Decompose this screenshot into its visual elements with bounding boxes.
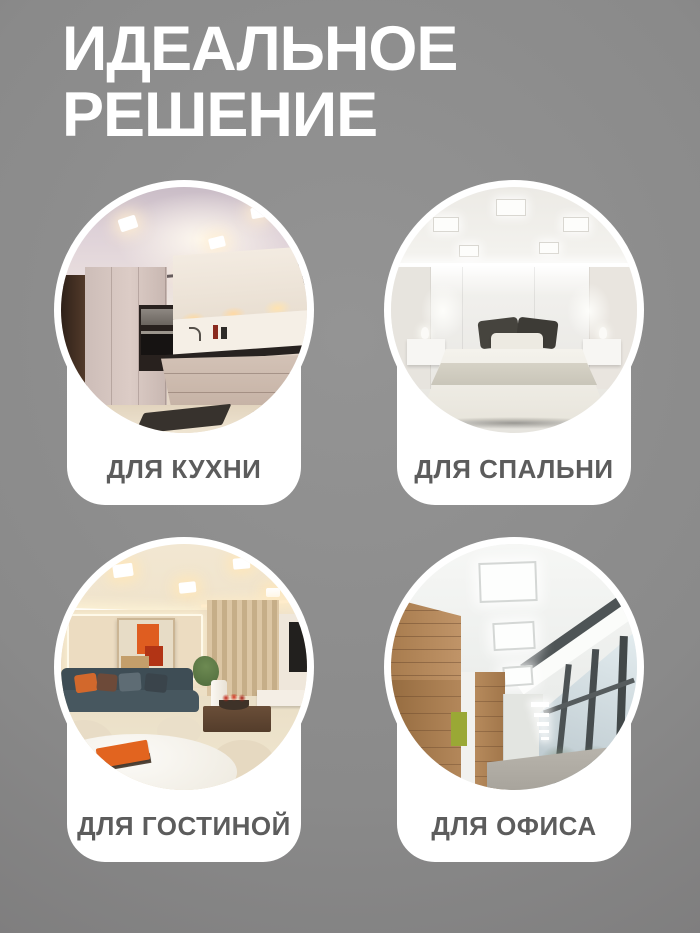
bedroom-lamp xyxy=(421,327,429,339)
bedroom-ceiling-panel xyxy=(433,217,459,232)
living-ceiling-light xyxy=(178,581,196,594)
bedroom-lamp xyxy=(599,327,607,339)
card-office: ДЛЯ ОФИСА xyxy=(384,537,644,862)
office-photo xyxy=(391,544,637,790)
living-room-photo xyxy=(61,544,307,790)
card-office-photo-ring xyxy=(384,537,644,797)
card-living-room-photo-ring xyxy=(54,537,314,797)
living-pillow-gray xyxy=(118,672,141,691)
office-corridor-light xyxy=(539,730,549,733)
office-green-accent xyxy=(451,712,467,746)
page-title: ИДЕАЛЬНОЕ РЕШЕНИЕ xyxy=(62,16,457,148)
living-fruit xyxy=(221,694,247,702)
bedroom-nightstand xyxy=(407,339,445,365)
kitchen-doorway xyxy=(61,275,87,407)
kitchen-oven-window xyxy=(141,331,173,355)
living-ceiling-light xyxy=(233,557,251,569)
page-title-line1: ИДЕАЛЬНОЕ xyxy=(62,16,457,82)
card-living-room-label: ДЛЯ ГОСТИНОЙ xyxy=(64,811,304,842)
kitchen-bottle xyxy=(221,327,227,339)
office-led-panel xyxy=(478,561,537,603)
kitchen-photo xyxy=(61,187,307,433)
office-led-panel xyxy=(502,665,533,687)
bedroom-ceiling-panel xyxy=(459,245,479,257)
card-bedroom-photo-ring xyxy=(384,180,644,440)
kitchen-bottle xyxy=(213,325,218,339)
office-led-panel xyxy=(492,621,535,651)
living-tv xyxy=(289,622,307,672)
bedroom-bed xyxy=(419,349,609,421)
promo-banner: ИДЕАЛЬНОЕ РЕШЕНИЕ xyxy=(0,0,700,933)
card-kitchen: ДЛЯ КУХНИ xyxy=(54,180,314,505)
bedroom-blanket xyxy=(431,363,597,385)
office-corridor-light xyxy=(537,722,549,726)
bedroom-ceiling-panel xyxy=(563,217,589,232)
bedroom-photo xyxy=(391,187,637,433)
card-kitchen-label: ДЛЯ КУХНИ xyxy=(64,454,304,485)
bedroom-nightstand xyxy=(583,339,621,365)
office-corridor-light xyxy=(534,713,549,717)
living-pillow-orange xyxy=(74,673,98,694)
card-office-label: ДЛЯ ОФИСА xyxy=(394,811,634,842)
living-pillow-dark xyxy=(144,673,168,693)
kitchen-faucet xyxy=(189,327,201,341)
living-ceiling-light xyxy=(266,588,280,597)
office-corridor-light xyxy=(531,702,549,707)
bedroom-ceiling-panel xyxy=(496,199,526,216)
living-tv-console xyxy=(257,690,307,706)
living-sofa-seat xyxy=(61,690,199,712)
office-corridor-light xyxy=(541,737,549,740)
living-pillow-brown xyxy=(96,673,117,692)
card-living-room: ДЛЯ ГОСТИНОЙ xyxy=(54,537,314,862)
bedroom-bed-shadow xyxy=(421,417,607,429)
bedroom-ceiling-panel xyxy=(539,242,559,254)
living-ceiling-light xyxy=(112,563,134,579)
card-bedroom-label: ДЛЯ СПАЛЬНИ xyxy=(394,454,634,485)
kitchen-microwave xyxy=(141,309,173,325)
card-kitchen-photo-ring xyxy=(54,180,314,440)
card-bedroom: ДЛЯ СПАЛЬНИ xyxy=(384,180,644,505)
page-title-line2: РЕШЕНИЕ xyxy=(62,82,457,148)
